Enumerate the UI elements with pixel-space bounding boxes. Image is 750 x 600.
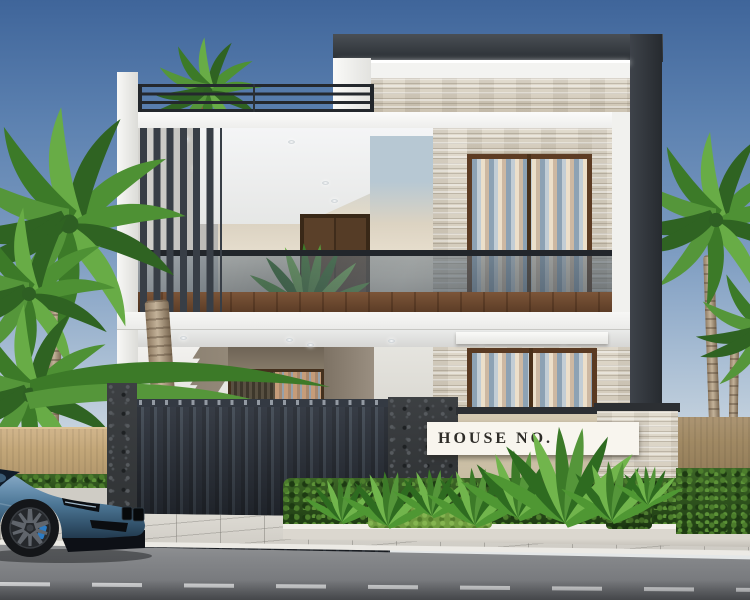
railing-post [253, 84, 255, 112]
travertine-roof-band [368, 78, 630, 112]
car-grille [133, 508, 144, 521]
railing-post [138, 84, 142, 112]
road-shadow [0, 580, 750, 600]
travertine-above-window [467, 128, 592, 156]
charcoal-frame-right [630, 34, 662, 440]
blue-sports-car [0, 462, 156, 564]
downlight [288, 140, 295, 144]
window-light-shelf [456, 332, 608, 344]
wheel-hub [27, 525, 34, 532]
roof-charcoal-band [333, 34, 663, 62]
roof-terrace-railing [138, 84, 374, 112]
car-front-wheel [1, 499, 59, 557]
architectural-render: HOUSE NO. [0, 0, 750, 600]
front-garden-shrubs [290, 420, 710, 532]
first-floor-balcony [138, 128, 612, 312]
downlight [322, 181, 329, 185]
downlight [331, 199, 338, 203]
downlight [388, 339, 395, 343]
car-grille [122, 507, 132, 520]
roof-fascia-white [333, 63, 630, 78]
gate-clips [139, 400, 389, 405]
railing-post [370, 84, 374, 112]
